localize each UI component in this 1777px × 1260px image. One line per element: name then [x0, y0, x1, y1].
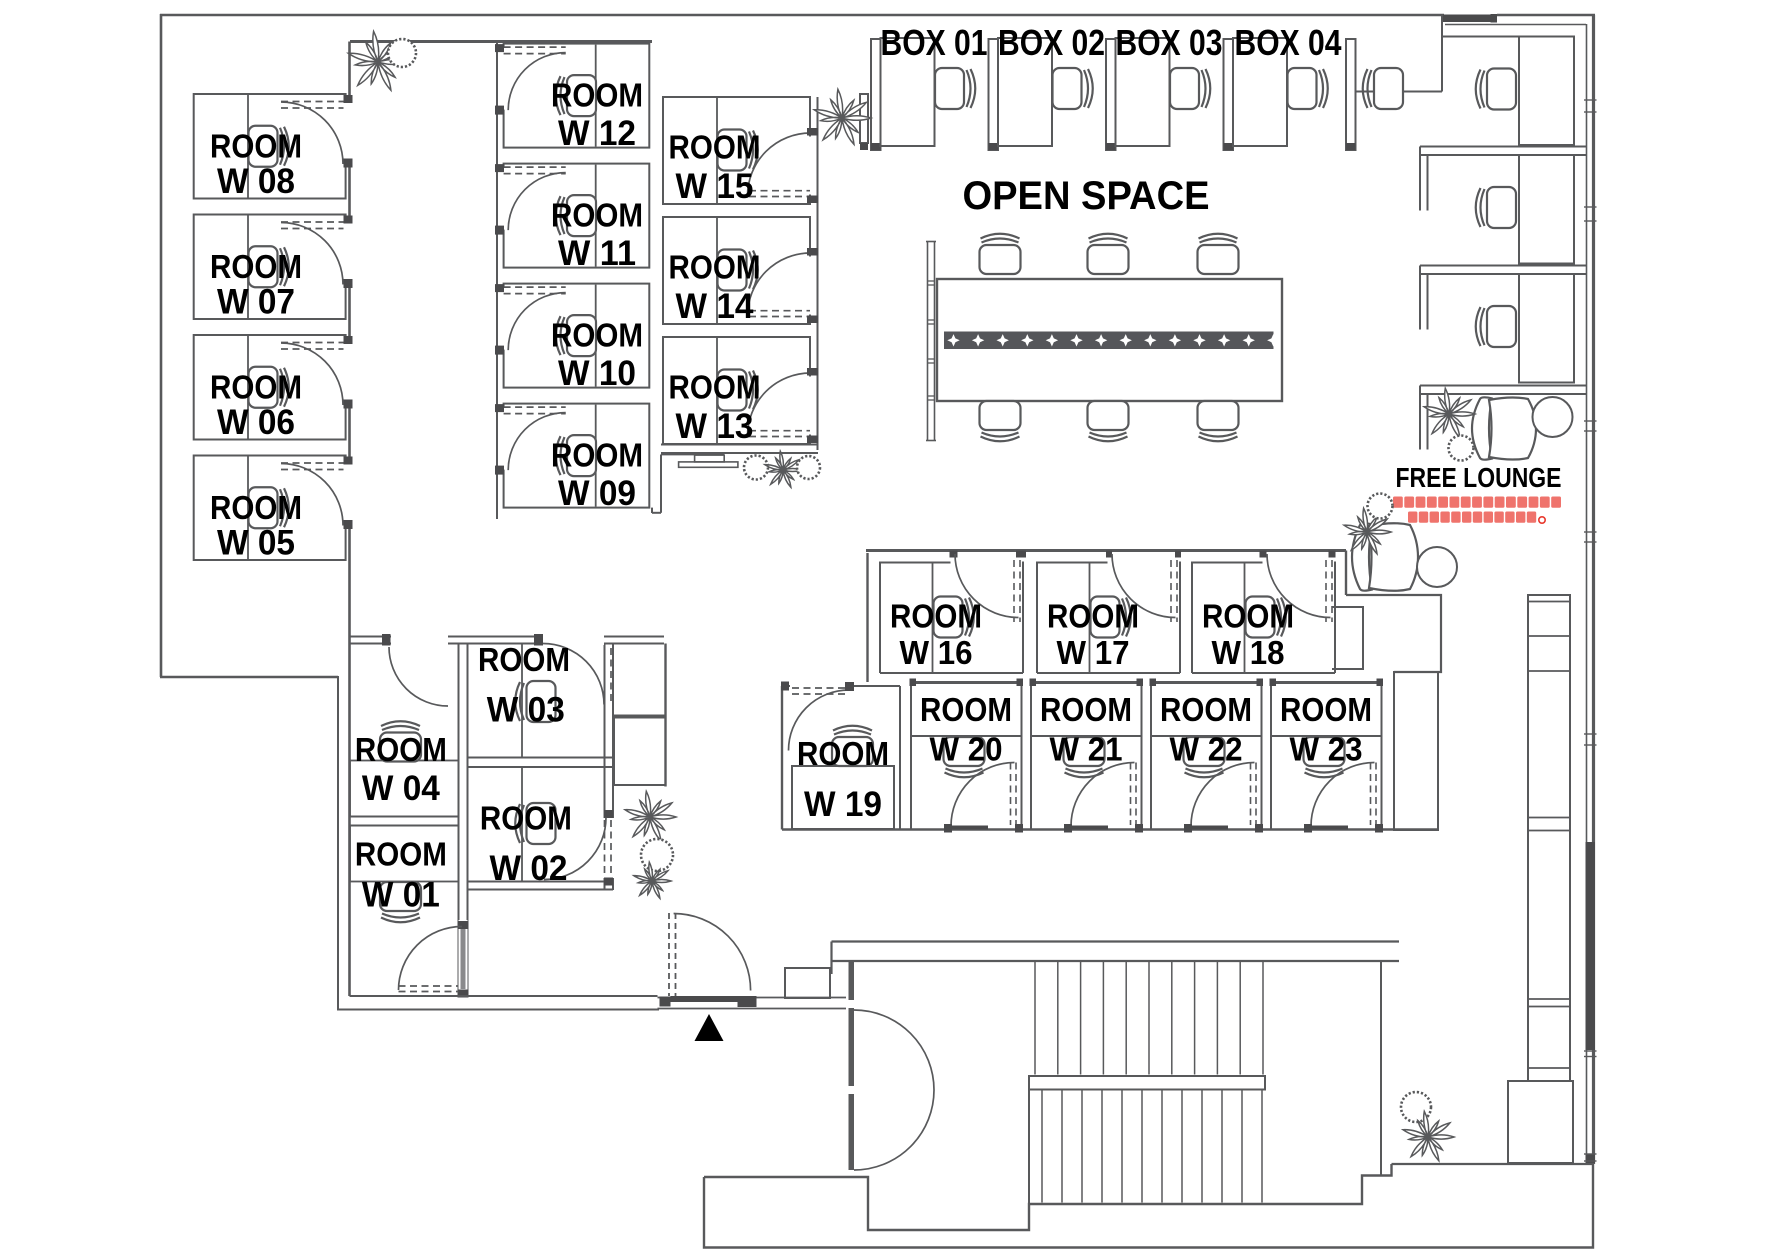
svg-text:ROOM: ROOM [1160, 691, 1252, 728]
svg-text:ROOM: ROOM [551, 317, 643, 354]
svg-text:W 12: W 12 [558, 114, 636, 153]
svg-text:ROOM: ROOM [210, 369, 302, 406]
svg-text:W 18: W 18 [1212, 634, 1285, 671]
svg-text:BOX 02: BOX 02 [998, 22, 1105, 63]
svg-text:W 16: W 16 [900, 634, 973, 671]
svg-text:W 03: W 03 [487, 691, 565, 730]
svg-text:ROOM: ROOM [890, 598, 982, 635]
svg-text:W 01: W 01 [362, 876, 440, 915]
svg-text:W 15: W 15 [676, 167, 754, 206]
svg-text:W 19: W 19 [804, 785, 882, 824]
svg-text:ROOM: ROOM [210, 248, 302, 285]
svg-text:ROOM: ROOM [210, 489, 302, 526]
svg-text:W 21: W 21 [1050, 731, 1123, 768]
svg-text:ROOM: ROOM [797, 735, 889, 772]
svg-text:ROOM: ROOM [920, 691, 1012, 728]
svg-text:W 10: W 10 [558, 354, 636, 393]
svg-text:W 06: W 06 [217, 403, 295, 442]
svg-text:ROOM: ROOM [210, 128, 302, 165]
svg-text:ROOM: ROOM [1202, 598, 1294, 635]
svg-text:ROOM: ROOM [669, 369, 761, 406]
svg-text:W 09: W 09 [558, 474, 636, 513]
svg-text:ROOM: ROOM [669, 249, 761, 286]
svg-text:ROOM: ROOM [480, 800, 572, 837]
svg-text:ROOM: ROOM [551, 77, 643, 114]
svg-text:BOX 04: BOX 04 [1235, 22, 1342, 63]
svg-text:W 17: W 17 [1057, 634, 1130, 671]
svg-text:ROOM: ROOM [1280, 691, 1372, 728]
svg-text:ROOM: ROOM [551, 437, 643, 474]
svg-text:ROOM: ROOM [669, 129, 761, 166]
svg-text:BOX 01: BOX 01 [881, 22, 988, 63]
svg-text:BOX 03: BOX 03 [1116, 22, 1223, 63]
svg-text:OPEN SPACE: OPEN SPACE [963, 174, 1210, 218]
svg-text:ROOM: ROOM [355, 731, 447, 768]
svg-text:W 07: W 07 [217, 283, 295, 322]
svg-text:ROOM: ROOM [1047, 598, 1139, 635]
svg-text:ROOM: ROOM [355, 836, 447, 873]
svg-text:W 13: W 13 [676, 407, 754, 446]
svg-text:W 11: W 11 [558, 234, 636, 273]
svg-text:W 08: W 08 [217, 162, 295, 201]
svg-text:W 14: W 14 [676, 287, 754, 326]
svg-text:ROOM: ROOM [478, 641, 570, 678]
svg-text:W 05: W 05 [217, 524, 295, 563]
svg-text:W 04: W 04 [362, 769, 440, 808]
svg-text:FREE LOUNGE: FREE LOUNGE [1396, 462, 1562, 493]
svg-text:W 02: W 02 [490, 849, 568, 888]
svg-text:W 20: W 20 [930, 731, 1003, 768]
svg-text:W 22: W 22 [1170, 731, 1243, 768]
svg-text:W 23: W 23 [1290, 731, 1363, 768]
svg-text:ROOM: ROOM [551, 197, 643, 234]
svg-text:ROOM: ROOM [1040, 691, 1132, 728]
